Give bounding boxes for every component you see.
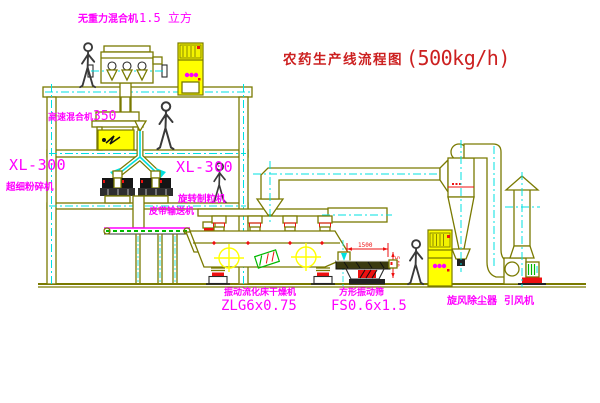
induced-draft-fan [504, 258, 546, 284]
control-cabinet-upper [178, 43, 203, 95]
title-capacity: (500kg/h) [406, 46, 510, 70]
label-pulverizer-name: 超细粉碎机 [6, 183, 54, 193]
label-sifter-model: FS0.6x1.5 [331, 299, 407, 313]
feed-pipe [133, 196, 144, 228]
label-cyclone: 旋风除尘器 [447, 297, 497, 307]
label-sifter-name: 方形振动筛 [339, 289, 384, 298]
dim-1500: 1500 [358, 242, 373, 249]
label-dryer-name: 振动流化床干燥机 [224, 289, 296, 298]
worker-second-floor [158, 102, 174, 149]
diagram-title: 农药生产线流程图 (500kg/h) [283, 46, 510, 70]
label-granulator-name: 旋转制粒机 [178, 195, 226, 205]
label-granulator-model: XL-300 [176, 160, 233, 175]
label-gravity-mixer: 无重力混合机1.5 立方 [78, 12, 192, 25]
rotary-granulator-left [100, 171, 135, 203]
control-cabinet-lower [428, 230, 452, 286]
label-pulverizer-model: XL-300 [9, 158, 66, 173]
label-fan: 引风机 [504, 297, 534, 307]
label-belt-conveyor: 皮带输送机 [149, 208, 194, 217]
belt-conveyor [104, 228, 190, 283]
flow-diagram-canvas: 1500 540 农药生产线流程图 (500kg/h) 无重力混合机1.5 立方 [0, 0, 600, 403]
worker-ground-floor [408, 240, 423, 284]
label-high-speed-mixer: 高速混合机350 [48, 110, 117, 123]
title-text: 农药生产线流程图 [283, 48, 403, 68]
label-dryer-model: ZLG6x0.75 [221, 299, 297, 313]
